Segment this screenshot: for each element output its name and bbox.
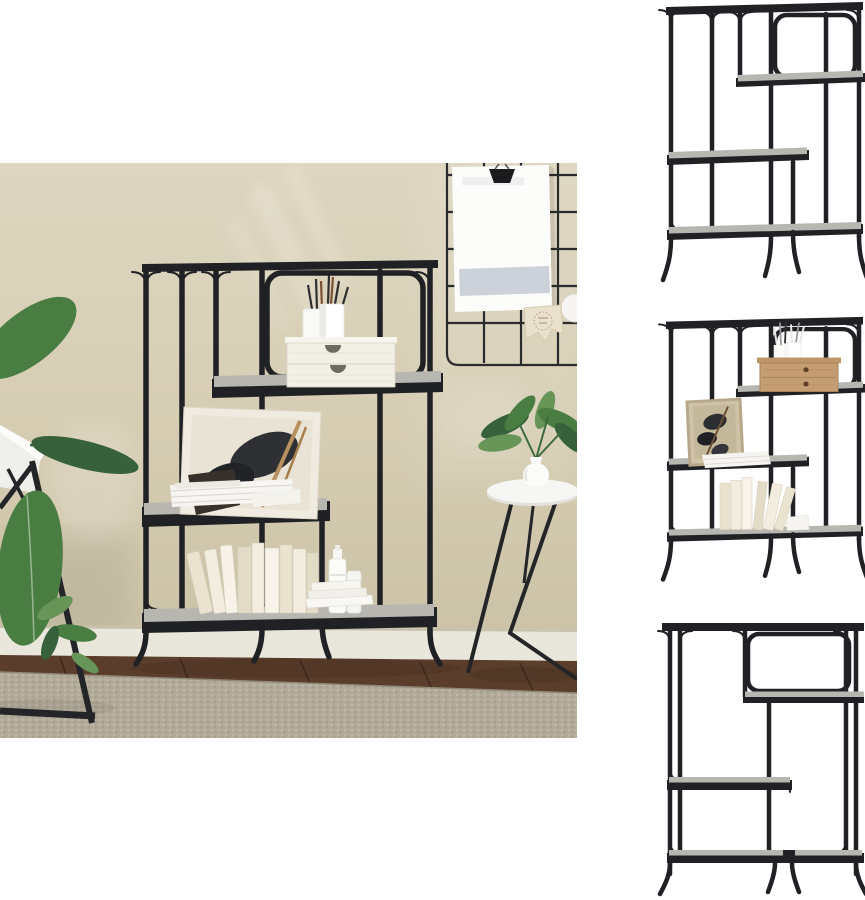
thumbnail-angle-decorated[interactable] bbox=[640, 301, 865, 598]
books-row bbox=[720, 478, 809, 531]
bookshelf-angle bbox=[659, 2, 865, 280]
paper-stack bbox=[170, 479, 301, 507]
wooden-drawer-box bbox=[757, 358, 841, 392]
thumbnail-front-empty[interactable] bbox=[640, 602, 865, 899]
thumbnail-angle-empty[interactable] bbox=[640, 0, 865, 297]
drawer-box bbox=[285, 337, 397, 387]
brush-cups bbox=[774, 321, 804, 362]
bookshelf-front bbox=[658, 623, 865, 894]
pinned-paper bbox=[452, 164, 556, 312]
product-gallery bbox=[0, 0, 865, 900]
main-product-photo[interactable] bbox=[0, 163, 577, 738]
floor bbox=[0, 626, 577, 738]
